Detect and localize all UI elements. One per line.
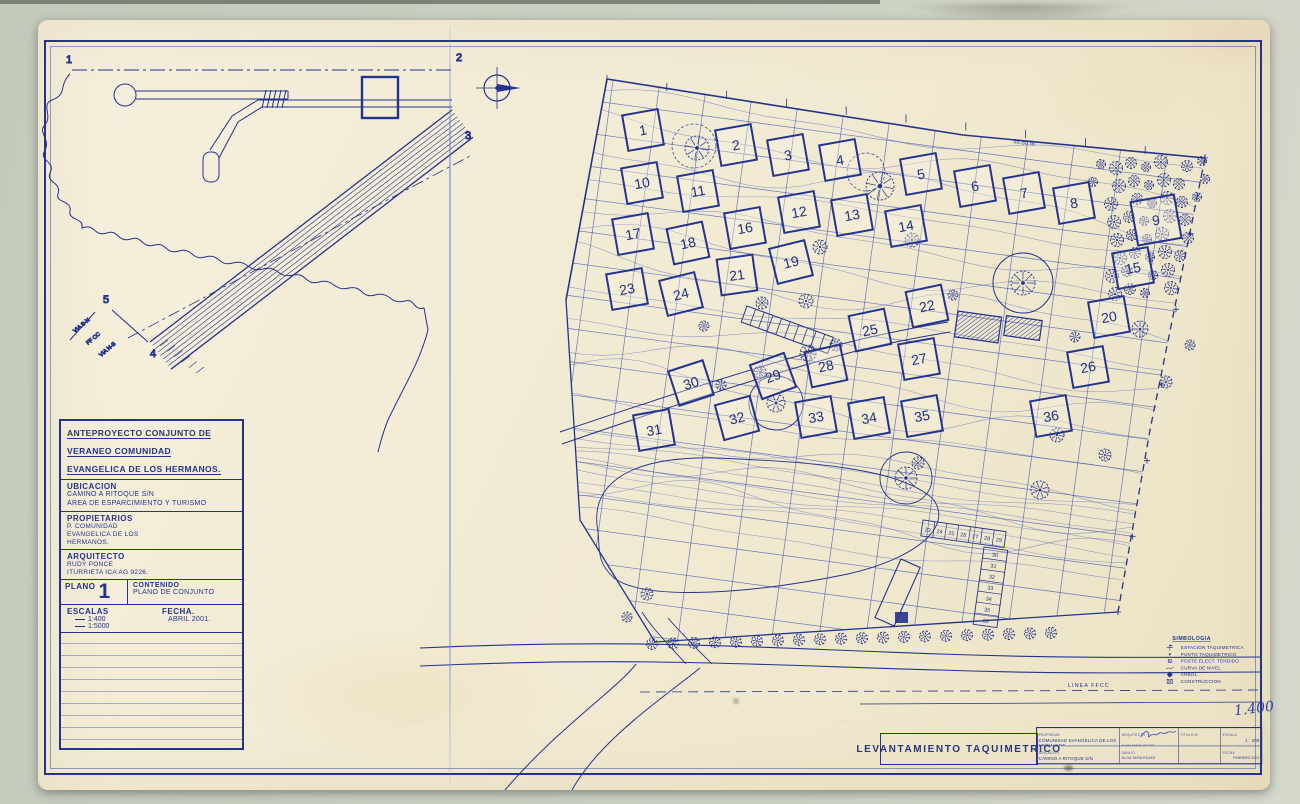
propietarios-label: PROPIETARIOS bbox=[67, 514, 236, 523]
lot-number: 18 bbox=[679, 234, 698, 253]
lot-number: 6 bbox=[970, 177, 980, 194]
lot-square: 20 bbox=[1087, 295, 1131, 339]
lot-number: 26 bbox=[1079, 358, 1097, 376]
lot-number: 20 bbox=[1100, 308, 1118, 326]
lot-number: 11 bbox=[689, 182, 706, 200]
lot-number: 1 bbox=[638, 121, 648, 138]
propietarios-line: EVANGELICA DE LOS bbox=[67, 531, 236, 539]
project-title-line: VERANEO COMUNIDAD bbox=[67, 446, 171, 457]
legend-label: CURVA DE NIVEL bbox=[1181, 665, 1222, 670]
legend-item: ESTACION TAQUIMETRICA bbox=[1163, 644, 1262, 651]
legend-label: PUNTO TAQUIMETRICO bbox=[1181, 651, 1237, 656]
lot-square: 17 bbox=[611, 212, 655, 256]
lot-number: 12 bbox=[790, 203, 808, 221]
titulo-cell: TITULO Nº bbox=[1179, 728, 1221, 746]
lot-square: 36 bbox=[1029, 394, 1073, 438]
lot-square: 2 bbox=[714, 123, 758, 167]
lot-number: 33 bbox=[807, 408, 825, 426]
project-title-line: EVANGELICA DE LOS HERMANOS. bbox=[67, 464, 221, 475]
propietarios-line: P. COMUNIDAD bbox=[67, 523, 236, 531]
lot-square: 1 bbox=[621, 108, 665, 152]
lot-square: 14 bbox=[884, 204, 928, 248]
ubicacion-line: CAMINO A RITOQUE S/N bbox=[67, 491, 236, 500]
lot-square: 6 bbox=[953, 164, 997, 208]
lot-number: 22 bbox=[918, 297, 937, 316]
project-title-line: ANTEPROYECTO CONJUNTO DE bbox=[67, 428, 211, 439]
contenido-value: PLANO DE CONJUNTO bbox=[133, 589, 237, 598]
legend: SIMBOLOGIA ESTACION TAQUIMETRICAPUNTO TA… bbox=[1163, 633, 1262, 684]
lot-square: 3 bbox=[766, 133, 810, 177]
lot-square: 4 bbox=[818, 138, 862, 182]
footer-main-title: LEVANTAMIENTO TAQUIMETRICO bbox=[856, 744, 1061, 755]
lot-square: 25 bbox=[847, 307, 892, 352]
legend-label: POSTE ELECT. TENDIDO bbox=[1181, 658, 1239, 663]
lot-square: 26 bbox=[1066, 345, 1110, 389]
lot-square: 18 bbox=[665, 220, 710, 265]
legend-item: CURVA DE NIVEL bbox=[1163, 664, 1262, 671]
fecha-cell: FECHA FEBRERO 2001 bbox=[1221, 746, 1261, 763]
arquitecto-label: ARQUITECTO bbox=[67, 552, 236, 561]
empty-ruled-rows bbox=[61, 632, 242, 748]
lot-square: 34 bbox=[847, 396, 891, 440]
lot-square: 11 bbox=[676, 169, 720, 213]
blank-cell bbox=[1179, 746, 1221, 763]
lot-number: 36 bbox=[1042, 407, 1060, 425]
lot-number: 17 bbox=[624, 225, 642, 243]
lot-number: 34 bbox=[860, 409, 878, 427]
lot-number: 3 bbox=[783, 146, 793, 163]
plano-row: PLANO 1 CONTENIDO PLANO DE CONJUNTO bbox=[61, 580, 242, 605]
lot-square: 10 bbox=[620, 161, 664, 205]
lot-square: 33 bbox=[794, 395, 838, 439]
fecha-label: FECHA. bbox=[162, 607, 238, 616]
lot-number: 19 bbox=[781, 252, 800, 271]
lot-number: 25 bbox=[861, 321, 880, 340]
lot-square: 8 bbox=[1052, 181, 1096, 225]
lot-number: 4 bbox=[835, 151, 845, 168]
lot-square: 7 bbox=[1002, 171, 1046, 215]
propiedad-cell: PROPIEDAD COMUNIDAD EVANGELICA DE LOS HE… bbox=[1037, 728, 1119, 746]
lot-number: 23 bbox=[618, 280, 636, 298]
escalas-row: ESCALAS 1:400 1:5000 FECHA. ABRIL 2001. bbox=[61, 605, 242, 633]
project-title: ANTEPROYECTO CONJUNTO DE VERANEO COMUNID… bbox=[61, 421, 242, 480]
fold-crease bbox=[449, 26, 451, 782]
legend-item: CONSTRUCCION bbox=[1163, 678, 1262, 685]
contenido-label: CONTENIDO bbox=[133, 582, 237, 589]
ubicacion-cell: UBICACION CAMINO A RITOQUE S/N bbox=[1037, 746, 1119, 763]
lot-square: 21 bbox=[716, 254, 759, 297]
lot-number: 5 bbox=[916, 165, 926, 182]
legend-label: ARBOL bbox=[1181, 672, 1198, 677]
footer-title-box: LEVANTAMIENTO TAQUIMETRICO bbox=[880, 733, 1038, 765]
lot-number: 7 bbox=[1019, 184, 1029, 201]
arquitecto-line: ITURRIETA ICA AG 9226. bbox=[67, 569, 236, 577]
plano-label: PLANO bbox=[65, 582, 96, 591]
lot-number: 14 bbox=[897, 217, 915, 235]
lot-number: 35 bbox=[913, 407, 931, 425]
lot-square: 28 bbox=[803, 343, 848, 388]
lot-number: 27 bbox=[910, 350, 928, 368]
plano-number: 1 bbox=[99, 582, 111, 602]
legend-label: ESTACION TAQUIMETRICA bbox=[1181, 645, 1244, 650]
ink-smudge bbox=[733, 698, 739, 704]
lot-square: 16 bbox=[723, 206, 767, 250]
lot-number: 10 bbox=[633, 174, 651, 192]
ubicacion-line: AREA DE ESPARCIMIENTO Y TURISMO bbox=[67, 500, 236, 509]
lot-number: 28 bbox=[817, 357, 836, 376]
lot-number: 21 bbox=[728, 266, 746, 284]
lot-number: 31 bbox=[645, 421, 663, 439]
legend-item: PUNTO TAQUIMETRICO bbox=[1163, 651, 1262, 658]
lot-square: 15 bbox=[1111, 246, 1155, 290]
ubicacion-section: UBICACION CAMINO A RITOQUE S/N AREA DE E… bbox=[61, 480, 242, 512]
arquitecto-line: RUDY PONCE bbox=[67, 561, 236, 569]
legend-item: POSTE ELECT. TENDIDO bbox=[1163, 657, 1262, 664]
propietarios-line: HERMANOS. bbox=[67, 539, 236, 547]
lot-square: 23 bbox=[605, 267, 649, 311]
lot-number: 30 bbox=[681, 373, 701, 393]
legend-item: ARBOL bbox=[1163, 671, 1262, 678]
lot-square: 31 bbox=[632, 408, 676, 452]
lot-square: 5 bbox=[899, 152, 943, 196]
ubicacion-label: UBICACION bbox=[67, 482, 236, 491]
escala-value: 1:400 bbox=[67, 616, 152, 623]
arquitecto-cell: ARQUITECTO JUAN TAPIA ROJAS bbox=[1120, 728, 1178, 746]
lot-number: 32 bbox=[727, 408, 746, 427]
arquitecto-section: ARQUITECTO RUDY PONCE ITURRIETA ICA AG 9… bbox=[61, 550, 242, 580]
lot-square: 22 bbox=[904, 283, 949, 328]
escalas-label: ESCALAS bbox=[67, 607, 152, 616]
lot-number: 15 bbox=[1124, 259, 1142, 277]
footer-table: PROPIEDAD COMUNIDAD EVANGELICA DE LOS HE… bbox=[1036, 727, 1261, 763]
dibujo-cell: DIBUJO OLGA TAPIA ROJAS bbox=[1120, 746, 1178, 763]
escala-cell: ESCALA 1 : 200 bbox=[1221, 728, 1261, 746]
title-block: ANTEPROYECTO CONJUNTO DE VERANEO COMUNID… bbox=[59, 419, 244, 750]
lot-number: 2 bbox=[731, 136, 741, 153]
lot-number: 24 bbox=[671, 284, 690, 303]
lot-number: 29 bbox=[763, 366, 783, 386]
lot-square: 27 bbox=[897, 337, 941, 381]
lot-number: 9 bbox=[1151, 211, 1161, 228]
signature bbox=[1139, 729, 1177, 741]
lot-number: 16 bbox=[736, 219, 754, 237]
propietarios-section: PROPIETARIOS P. COMUNIDAD EVANGELICA DE … bbox=[61, 512, 242, 550]
legend-label: CONSTRUCCION bbox=[1181, 679, 1221, 684]
lot-square: 13 bbox=[830, 193, 874, 237]
lot-square: 12 bbox=[777, 190, 821, 234]
lot-square: 35 bbox=[900, 394, 944, 438]
lot-number: 8 bbox=[1069, 194, 1079, 211]
lot-square: 9 bbox=[1129, 193, 1182, 246]
escala-value: 1:5000 bbox=[67, 623, 152, 630]
legend-title: SIMBOLOGIA bbox=[1172, 636, 1211, 642]
construction-icon bbox=[1163, 677, 1177, 684]
ink-smudge bbox=[1064, 765, 1073, 771]
fecha-value: ABRIL 2001. bbox=[162, 616, 238, 625]
lot-number: 13 bbox=[843, 206, 861, 224]
